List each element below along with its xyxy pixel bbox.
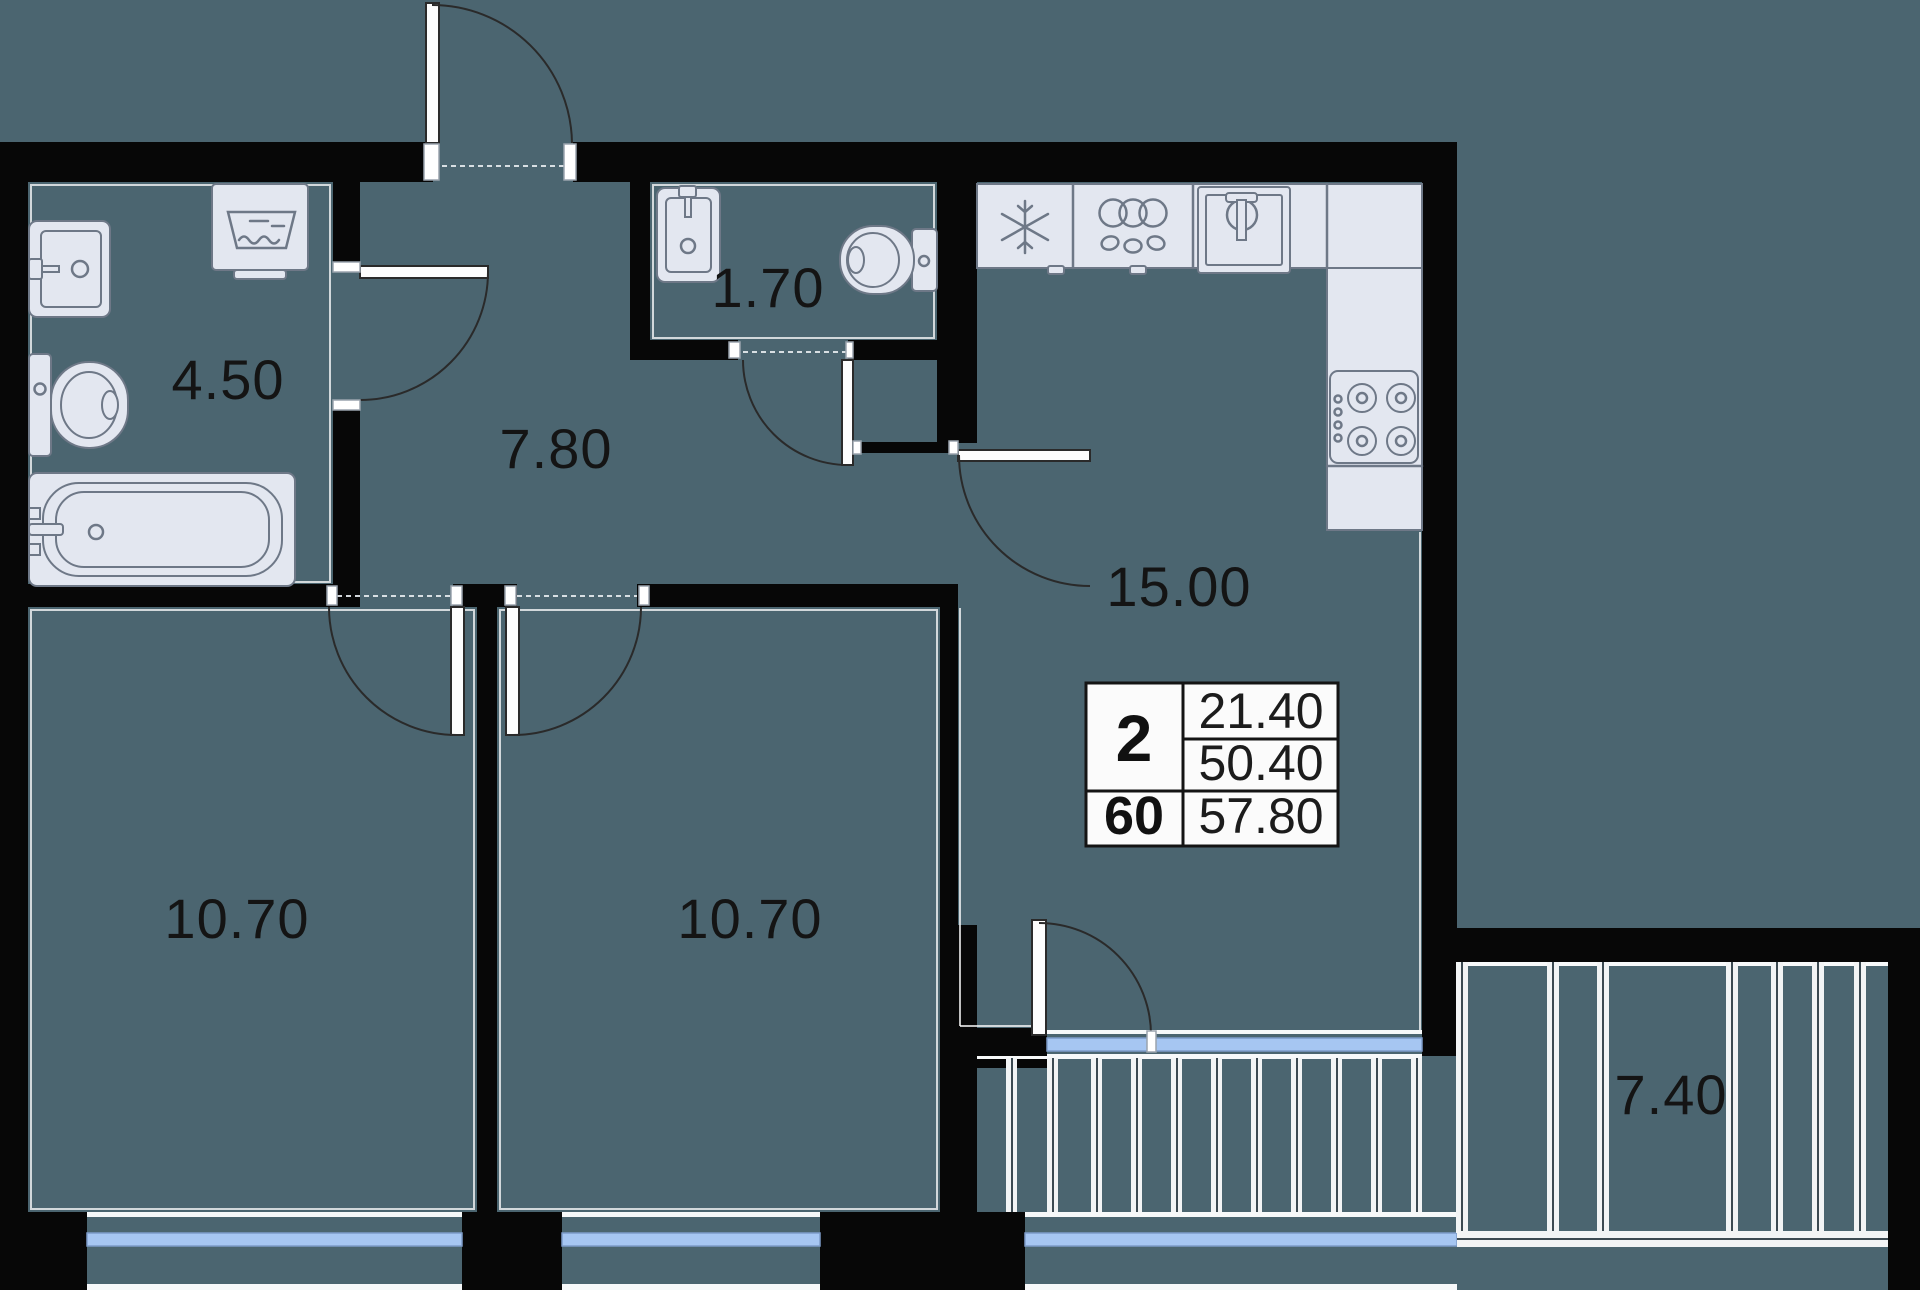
info-area-bottom: 57.80 (1198, 788, 1323, 844)
wc-area-label: 1.70 (712, 256, 825, 319)
info-area-top: 21.40 (1198, 683, 1323, 739)
info-area-middle: 50.40 (1198, 735, 1323, 791)
bathtub-icon (29, 473, 295, 586)
info-box: 2 60 21.40 50.40 57.80 (1086, 683, 1338, 846)
bedroom-left-area-label: 10.70 (164, 887, 309, 950)
bedroom-middle-area-label: 10.70 (677, 887, 822, 950)
hallway-area-label: 7.80 (500, 417, 613, 480)
floor-plan: 4.50 7.80 1.70 15.00 10.70 10.70 7.40 2 … (0, 0, 1920, 1290)
bathroom-toilet-icon (29, 354, 128, 456)
info-rooms-count: 2 (1116, 701, 1153, 775)
info-unit-number: 60 (1104, 786, 1164, 846)
stove-icon (1330, 371, 1418, 463)
washing-machine-icon (212, 184, 308, 279)
kitchen-sink-icon (1198, 187, 1290, 273)
balcony-area-label: 7.40 (1615, 1063, 1728, 1126)
bathroom-area-label: 4.50 (172, 348, 285, 411)
kitchen-living-area-label: 15.00 (1106, 555, 1251, 618)
bathroom-sink-icon (29, 221, 110, 317)
wc-toilet-icon (840, 226, 937, 294)
